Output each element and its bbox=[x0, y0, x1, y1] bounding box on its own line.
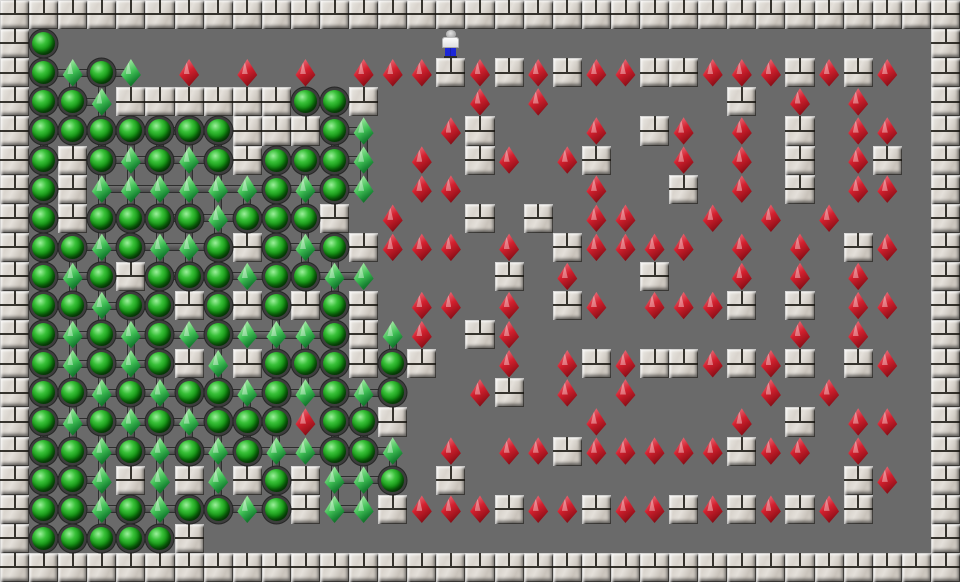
floor-tile[interactable] bbox=[320, 58, 349, 87]
floor-tile[interactable] bbox=[815, 262, 844, 291]
box-red[interactable] bbox=[698, 291, 727, 320]
floor-tile[interactable] bbox=[873, 262, 902, 291]
box-red[interactable] bbox=[844, 407, 873, 436]
floor-tile[interactable] bbox=[436, 349, 465, 378]
floor-tile[interactable] bbox=[204, 58, 233, 87]
floor-tile[interactable] bbox=[611, 175, 640, 204]
goal-tile[interactable] bbox=[87, 204, 116, 233]
goal-tile[interactable] bbox=[262, 495, 291, 524]
floor-tile[interactable] bbox=[815, 407, 844, 436]
box-red[interactable] bbox=[495, 349, 524, 378]
floor-tile[interactable] bbox=[698, 320, 727, 349]
floor-tile[interactable] bbox=[815, 146, 844, 175]
box-red[interactable] bbox=[727, 262, 756, 291]
floor-tile[interactable] bbox=[727, 320, 756, 349]
goal-tile[interactable] bbox=[29, 495, 58, 524]
box-on-goal[interactable] bbox=[378, 320, 407, 349]
box-red[interactable] bbox=[436, 291, 465, 320]
box-red[interactable] bbox=[407, 320, 436, 349]
floor-tile[interactable] bbox=[524, 29, 553, 58]
floor-tile[interactable] bbox=[582, 524, 611, 553]
floor-tile[interactable] bbox=[524, 262, 553, 291]
goal-tile[interactable] bbox=[349, 437, 378, 466]
floor-tile[interactable] bbox=[378, 29, 407, 58]
floor-tile[interactable] bbox=[727, 29, 756, 58]
box-on-goal[interactable] bbox=[87, 175, 116, 204]
box-red[interactable] bbox=[698, 204, 727, 233]
goal-tile[interactable] bbox=[204, 291, 233, 320]
floor-tile[interactable] bbox=[436, 320, 465, 349]
floor-tile[interactable] bbox=[465, 29, 494, 58]
floor-tile[interactable] bbox=[465, 233, 494, 262]
floor-tile[interactable] bbox=[378, 146, 407, 175]
floor-tile[interactable] bbox=[698, 116, 727, 145]
floor-tile[interactable] bbox=[611, 262, 640, 291]
goal-tile[interactable] bbox=[29, 204, 58, 233]
goal-tile[interactable] bbox=[116, 437, 145, 466]
box-red[interactable] bbox=[785, 262, 814, 291]
floor-tile[interactable] bbox=[407, 437, 436, 466]
box-red[interactable] bbox=[785, 87, 814, 116]
box-red[interactable] bbox=[873, 349, 902, 378]
floor-tile[interactable] bbox=[902, 116, 931, 145]
floor-tile[interactable] bbox=[495, 466, 524, 495]
box-red[interactable] bbox=[611, 58, 640, 87]
box-red[interactable] bbox=[524, 58, 553, 87]
goal-tile[interactable] bbox=[233, 204, 262, 233]
box-red[interactable] bbox=[756, 58, 785, 87]
goal-tile[interactable] bbox=[58, 116, 87, 145]
floor-tile[interactable] bbox=[756, 116, 785, 145]
floor-tile[interactable] bbox=[844, 29, 873, 58]
floor-tile[interactable] bbox=[640, 524, 669, 553]
floor-tile[interactable] bbox=[902, 262, 931, 291]
floor-tile[interactable] bbox=[756, 407, 785, 436]
box-red[interactable] bbox=[669, 233, 698, 262]
floor-tile[interactable] bbox=[320, 29, 349, 58]
box-red[interactable] bbox=[669, 116, 698, 145]
goal-tile[interactable] bbox=[29, 233, 58, 262]
floor-tile[interactable] bbox=[465, 437, 494, 466]
box-red[interactable] bbox=[436, 495, 465, 524]
floor-tile[interactable] bbox=[553, 524, 582, 553]
box-red[interactable] bbox=[756, 437, 785, 466]
box-red[interactable] bbox=[378, 233, 407, 262]
box-red[interactable] bbox=[727, 146, 756, 175]
box-red[interactable] bbox=[640, 495, 669, 524]
floor-tile[interactable] bbox=[465, 466, 494, 495]
floor-tile[interactable] bbox=[756, 175, 785, 204]
goal-tile[interactable] bbox=[87, 524, 116, 553]
floor-tile[interactable] bbox=[407, 87, 436, 116]
goal-tile[interactable] bbox=[116, 495, 145, 524]
floor-tile[interactable] bbox=[116, 29, 145, 58]
floor-tile[interactable] bbox=[640, 407, 669, 436]
floor-tile[interactable] bbox=[378, 175, 407, 204]
goal-tile[interactable] bbox=[175, 116, 204, 145]
goal-tile[interactable] bbox=[58, 378, 87, 407]
floor-tile[interactable] bbox=[873, 87, 902, 116]
floor-tile[interactable] bbox=[582, 378, 611, 407]
floor-tile[interactable] bbox=[815, 87, 844, 116]
box-red[interactable] bbox=[495, 233, 524, 262]
box-red[interactable] bbox=[495, 437, 524, 466]
floor-tile[interactable] bbox=[844, 204, 873, 233]
floor-tile[interactable] bbox=[553, 407, 582, 436]
goal-tile[interactable] bbox=[58, 233, 87, 262]
goal-tile[interactable] bbox=[320, 378, 349, 407]
floor-tile[interactable] bbox=[233, 524, 262, 553]
floor-tile[interactable] bbox=[611, 524, 640, 553]
box-red[interactable] bbox=[844, 146, 873, 175]
box-red[interactable] bbox=[495, 320, 524, 349]
goal-tile[interactable] bbox=[29, 320, 58, 349]
floor-tile[interactable] bbox=[436, 204, 465, 233]
floor-tile[interactable] bbox=[873, 320, 902, 349]
floor-tile[interactable] bbox=[465, 291, 494, 320]
goal-tile[interactable] bbox=[145, 262, 174, 291]
goal-tile[interactable] bbox=[87, 58, 116, 87]
floor-tile[interactable] bbox=[756, 233, 785, 262]
goal-tile[interactable] bbox=[29, 262, 58, 291]
floor-tile[interactable] bbox=[495, 524, 524, 553]
floor-tile[interactable] bbox=[640, 466, 669, 495]
goal-tile[interactable] bbox=[291, 204, 320, 233]
floor-tile[interactable] bbox=[553, 204, 582, 233]
goal-tile[interactable] bbox=[262, 466, 291, 495]
goal-tile[interactable] bbox=[58, 87, 87, 116]
box-red[interactable] bbox=[873, 466, 902, 495]
floor-tile[interactable] bbox=[815, 349, 844, 378]
goal-tile[interactable] bbox=[262, 175, 291, 204]
player[interactable] bbox=[436, 29, 465, 58]
box-red[interactable] bbox=[873, 407, 902, 436]
floor-tile[interactable] bbox=[524, 146, 553, 175]
box-on-goal[interactable] bbox=[204, 349, 233, 378]
floor-tile[interactable] bbox=[378, 524, 407, 553]
box-red[interactable] bbox=[756, 495, 785, 524]
box-red[interactable] bbox=[669, 146, 698, 175]
floor-tile[interactable] bbox=[582, 466, 611, 495]
floor-tile[interactable] bbox=[844, 524, 873, 553]
goal-tile[interactable] bbox=[87, 407, 116, 436]
floor-tile[interactable] bbox=[87, 29, 116, 58]
goal-tile[interactable] bbox=[29, 407, 58, 436]
goal-tile[interactable] bbox=[87, 349, 116, 378]
box-red[interactable] bbox=[436, 116, 465, 145]
floor-tile[interactable] bbox=[465, 524, 494, 553]
floor-tile[interactable] bbox=[698, 466, 727, 495]
box-red[interactable] bbox=[407, 146, 436, 175]
box-red[interactable] bbox=[553, 495, 582, 524]
floor-tile[interactable] bbox=[902, 29, 931, 58]
floor-tile[interactable] bbox=[815, 466, 844, 495]
floor-tile[interactable] bbox=[669, 378, 698, 407]
floor-tile[interactable] bbox=[902, 87, 931, 116]
box-red[interactable] bbox=[844, 437, 873, 466]
floor-tile[interactable] bbox=[553, 87, 582, 116]
box-red[interactable] bbox=[291, 407, 320, 436]
goal-tile[interactable] bbox=[291, 87, 320, 116]
floor-tile[interactable] bbox=[349, 29, 378, 58]
goal-tile[interactable] bbox=[262, 291, 291, 320]
goal-tile[interactable] bbox=[29, 29, 58, 58]
floor-tile[interactable] bbox=[611, 146, 640, 175]
floor-tile[interactable] bbox=[873, 524, 902, 553]
floor-tile[interactable] bbox=[204, 29, 233, 58]
goal-tile[interactable] bbox=[349, 407, 378, 436]
floor-tile[interactable] bbox=[902, 349, 931, 378]
floor-tile[interactable] bbox=[873, 204, 902, 233]
box-red[interactable] bbox=[844, 87, 873, 116]
floor-tile[interactable] bbox=[436, 524, 465, 553]
box-red[interactable] bbox=[582, 175, 611, 204]
floor-tile[interactable] bbox=[698, 146, 727, 175]
box-red[interactable] bbox=[756, 378, 785, 407]
floor-tile[interactable] bbox=[902, 495, 931, 524]
goal-tile[interactable] bbox=[320, 407, 349, 436]
floor-tile[interactable] bbox=[815, 29, 844, 58]
box-red[interactable] bbox=[785, 233, 814, 262]
box-red[interactable] bbox=[378, 204, 407, 233]
goal-tile[interactable] bbox=[116, 378, 145, 407]
goal-tile[interactable] bbox=[175, 262, 204, 291]
floor-tile[interactable] bbox=[407, 116, 436, 145]
box-red[interactable] bbox=[524, 495, 553, 524]
floor-tile[interactable] bbox=[640, 175, 669, 204]
box-red[interactable] bbox=[727, 175, 756, 204]
box-red[interactable] bbox=[291, 58, 320, 87]
floor-tile[interactable] bbox=[553, 466, 582, 495]
floor-tile[interactable] bbox=[756, 87, 785, 116]
floor-tile[interactable] bbox=[756, 524, 785, 553]
goal-tile[interactable] bbox=[29, 378, 58, 407]
goal-tile[interactable] bbox=[29, 466, 58, 495]
floor-tile[interactable] bbox=[495, 175, 524, 204]
floor-tile[interactable] bbox=[553, 116, 582, 145]
goal-tile[interactable] bbox=[291, 262, 320, 291]
goal-tile[interactable] bbox=[320, 116, 349, 145]
goal-tile[interactable] bbox=[320, 291, 349, 320]
floor-tile[interactable] bbox=[669, 524, 698, 553]
goal-tile[interactable] bbox=[204, 407, 233, 436]
box-red[interactable] bbox=[844, 262, 873, 291]
floor-tile[interactable] bbox=[524, 407, 553, 436]
box-red[interactable] bbox=[611, 349, 640, 378]
box-red[interactable] bbox=[611, 437, 640, 466]
box-on-goal[interactable] bbox=[204, 466, 233, 495]
goal-tile[interactable] bbox=[145, 116, 174, 145]
floor-tile[interactable] bbox=[902, 437, 931, 466]
goal-tile[interactable] bbox=[58, 291, 87, 320]
box-red[interactable] bbox=[611, 378, 640, 407]
box-red[interactable] bbox=[495, 146, 524, 175]
box-red[interactable] bbox=[407, 58, 436, 87]
goal-tile[interactable] bbox=[175, 437, 204, 466]
box-red[interactable] bbox=[844, 320, 873, 349]
floor-tile[interactable] bbox=[640, 320, 669, 349]
floor-tile[interactable] bbox=[902, 466, 931, 495]
box-red[interactable] bbox=[669, 437, 698, 466]
floor-tile[interactable] bbox=[524, 233, 553, 262]
floor-tile[interactable] bbox=[785, 204, 814, 233]
goal-tile[interactable] bbox=[29, 87, 58, 116]
box-red[interactable] bbox=[495, 291, 524, 320]
floor-tile[interactable] bbox=[698, 524, 727, 553]
floor-tile[interactable] bbox=[233, 29, 262, 58]
floor-tile[interactable] bbox=[407, 524, 436, 553]
goal-tile[interactable] bbox=[116, 291, 145, 320]
box-on-goal[interactable] bbox=[320, 466, 349, 495]
floor-tile[interactable] bbox=[465, 175, 494, 204]
floor-tile[interactable] bbox=[262, 524, 291, 553]
box-red[interactable] bbox=[611, 233, 640, 262]
goal-tile[interactable] bbox=[262, 233, 291, 262]
floor-tile[interactable] bbox=[495, 407, 524, 436]
goal-tile[interactable] bbox=[29, 146, 58, 175]
goal-tile[interactable] bbox=[145, 291, 174, 320]
floor-tile[interactable] bbox=[175, 29, 204, 58]
box-red[interactable] bbox=[407, 291, 436, 320]
floor-tile[interactable] bbox=[698, 378, 727, 407]
floor-tile[interactable] bbox=[582, 29, 611, 58]
goal-tile[interactable] bbox=[262, 407, 291, 436]
box-red[interactable] bbox=[378, 58, 407, 87]
floor-tile[interactable] bbox=[495, 87, 524, 116]
floor-tile[interactable] bbox=[524, 524, 553, 553]
floor-tile[interactable] bbox=[407, 466, 436, 495]
floor-tile[interactable] bbox=[436, 146, 465, 175]
floor-tile[interactable] bbox=[902, 58, 931, 87]
floor-tile[interactable] bbox=[756, 262, 785, 291]
floor-tile[interactable] bbox=[815, 291, 844, 320]
floor-tile[interactable] bbox=[582, 262, 611, 291]
floor-tile[interactable] bbox=[902, 524, 931, 553]
goal-tile[interactable] bbox=[378, 466, 407, 495]
box-red[interactable] bbox=[873, 175, 902, 204]
goal-tile[interactable] bbox=[87, 262, 116, 291]
box-red[interactable] bbox=[727, 233, 756, 262]
box-red[interactable] bbox=[611, 495, 640, 524]
floor-tile[interactable] bbox=[902, 320, 931, 349]
floor-tile[interactable] bbox=[611, 291, 640, 320]
floor-tile[interactable] bbox=[669, 87, 698, 116]
goal-tile[interactable] bbox=[320, 349, 349, 378]
goal-tile[interactable] bbox=[320, 320, 349, 349]
goal-tile[interactable] bbox=[175, 204, 204, 233]
box-red[interactable] bbox=[727, 58, 756, 87]
box-red[interactable] bbox=[582, 58, 611, 87]
box-red[interactable] bbox=[407, 495, 436, 524]
floor-tile[interactable] bbox=[873, 378, 902, 407]
box-red[interactable] bbox=[465, 378, 494, 407]
floor-tile[interactable] bbox=[378, 116, 407, 145]
box-red[interactable] bbox=[233, 58, 262, 87]
floor-tile[interactable] bbox=[669, 407, 698, 436]
floor-tile[interactable] bbox=[873, 29, 902, 58]
floor-tile[interactable] bbox=[698, 87, 727, 116]
box-red[interactable] bbox=[465, 58, 494, 87]
box-red[interactable] bbox=[582, 116, 611, 145]
box-red[interactable] bbox=[873, 291, 902, 320]
goal-tile[interactable] bbox=[262, 349, 291, 378]
floor-tile[interactable] bbox=[756, 291, 785, 320]
floor-tile[interactable] bbox=[553, 175, 582, 204]
floor-tile[interactable] bbox=[727, 466, 756, 495]
box-on-goal[interactable] bbox=[320, 495, 349, 524]
goal-tile[interactable] bbox=[29, 58, 58, 87]
floor-tile[interactable] bbox=[902, 146, 931, 175]
goal-tile[interactable] bbox=[58, 466, 87, 495]
floor-tile[interactable] bbox=[902, 175, 931, 204]
box-red[interactable] bbox=[524, 437, 553, 466]
floor-tile[interactable] bbox=[756, 466, 785, 495]
goal-tile[interactable] bbox=[29, 175, 58, 204]
box-red[interactable] bbox=[465, 495, 494, 524]
floor-tile[interactable] bbox=[407, 29, 436, 58]
goal-tile[interactable] bbox=[87, 320, 116, 349]
box-red[interactable] bbox=[844, 175, 873, 204]
floor-tile[interactable] bbox=[756, 320, 785, 349]
box-red[interactable] bbox=[553, 378, 582, 407]
floor-tile[interactable] bbox=[524, 291, 553, 320]
goal-tile[interactable] bbox=[87, 146, 116, 175]
box-red[interactable] bbox=[785, 320, 814, 349]
box-red[interactable] bbox=[436, 175, 465, 204]
floor-tile[interactable] bbox=[727, 378, 756, 407]
box-red[interactable] bbox=[407, 175, 436, 204]
box-red[interactable] bbox=[582, 233, 611, 262]
floor-tile[interactable] bbox=[902, 233, 931, 262]
floor-tile[interactable] bbox=[611, 320, 640, 349]
goal-tile[interactable] bbox=[175, 378, 204, 407]
goal-tile[interactable] bbox=[204, 495, 233, 524]
box-red[interactable] bbox=[640, 233, 669, 262]
floor-tile[interactable] bbox=[815, 320, 844, 349]
box-red[interactable] bbox=[698, 349, 727, 378]
floor-tile[interactable] bbox=[611, 466, 640, 495]
box-red[interactable] bbox=[465, 87, 494, 116]
goal-tile[interactable] bbox=[320, 87, 349, 116]
goal-tile[interactable] bbox=[29, 116, 58, 145]
floor-tile[interactable] bbox=[698, 407, 727, 436]
box-red[interactable] bbox=[553, 146, 582, 175]
goal-tile[interactable] bbox=[233, 407, 262, 436]
floor-tile[interactable] bbox=[436, 407, 465, 436]
box-red[interactable] bbox=[436, 233, 465, 262]
box-red[interactable] bbox=[815, 378, 844, 407]
goal-tile[interactable] bbox=[204, 320, 233, 349]
box-red[interactable] bbox=[815, 58, 844, 87]
floor-tile[interactable] bbox=[844, 378, 873, 407]
floor-tile[interactable] bbox=[902, 407, 931, 436]
box-red[interactable] bbox=[524, 87, 553, 116]
goal-tile[interactable] bbox=[291, 146, 320, 175]
floor-tile[interactable] bbox=[465, 349, 494, 378]
floor-tile[interactable] bbox=[785, 378, 814, 407]
floor-tile[interactable] bbox=[815, 233, 844, 262]
goal-tile[interactable] bbox=[29, 349, 58, 378]
floor-tile[interactable] bbox=[407, 204, 436, 233]
goal-tile[interactable] bbox=[145, 204, 174, 233]
floor-tile[interactable] bbox=[698, 29, 727, 58]
floor-tile[interactable] bbox=[524, 349, 553, 378]
goal-tile[interactable] bbox=[29, 291, 58, 320]
floor-tile[interactable] bbox=[524, 378, 553, 407]
floor-tile[interactable] bbox=[262, 58, 291, 87]
floor-tile[interactable] bbox=[785, 524, 814, 553]
goal-tile[interactable] bbox=[204, 116, 233, 145]
